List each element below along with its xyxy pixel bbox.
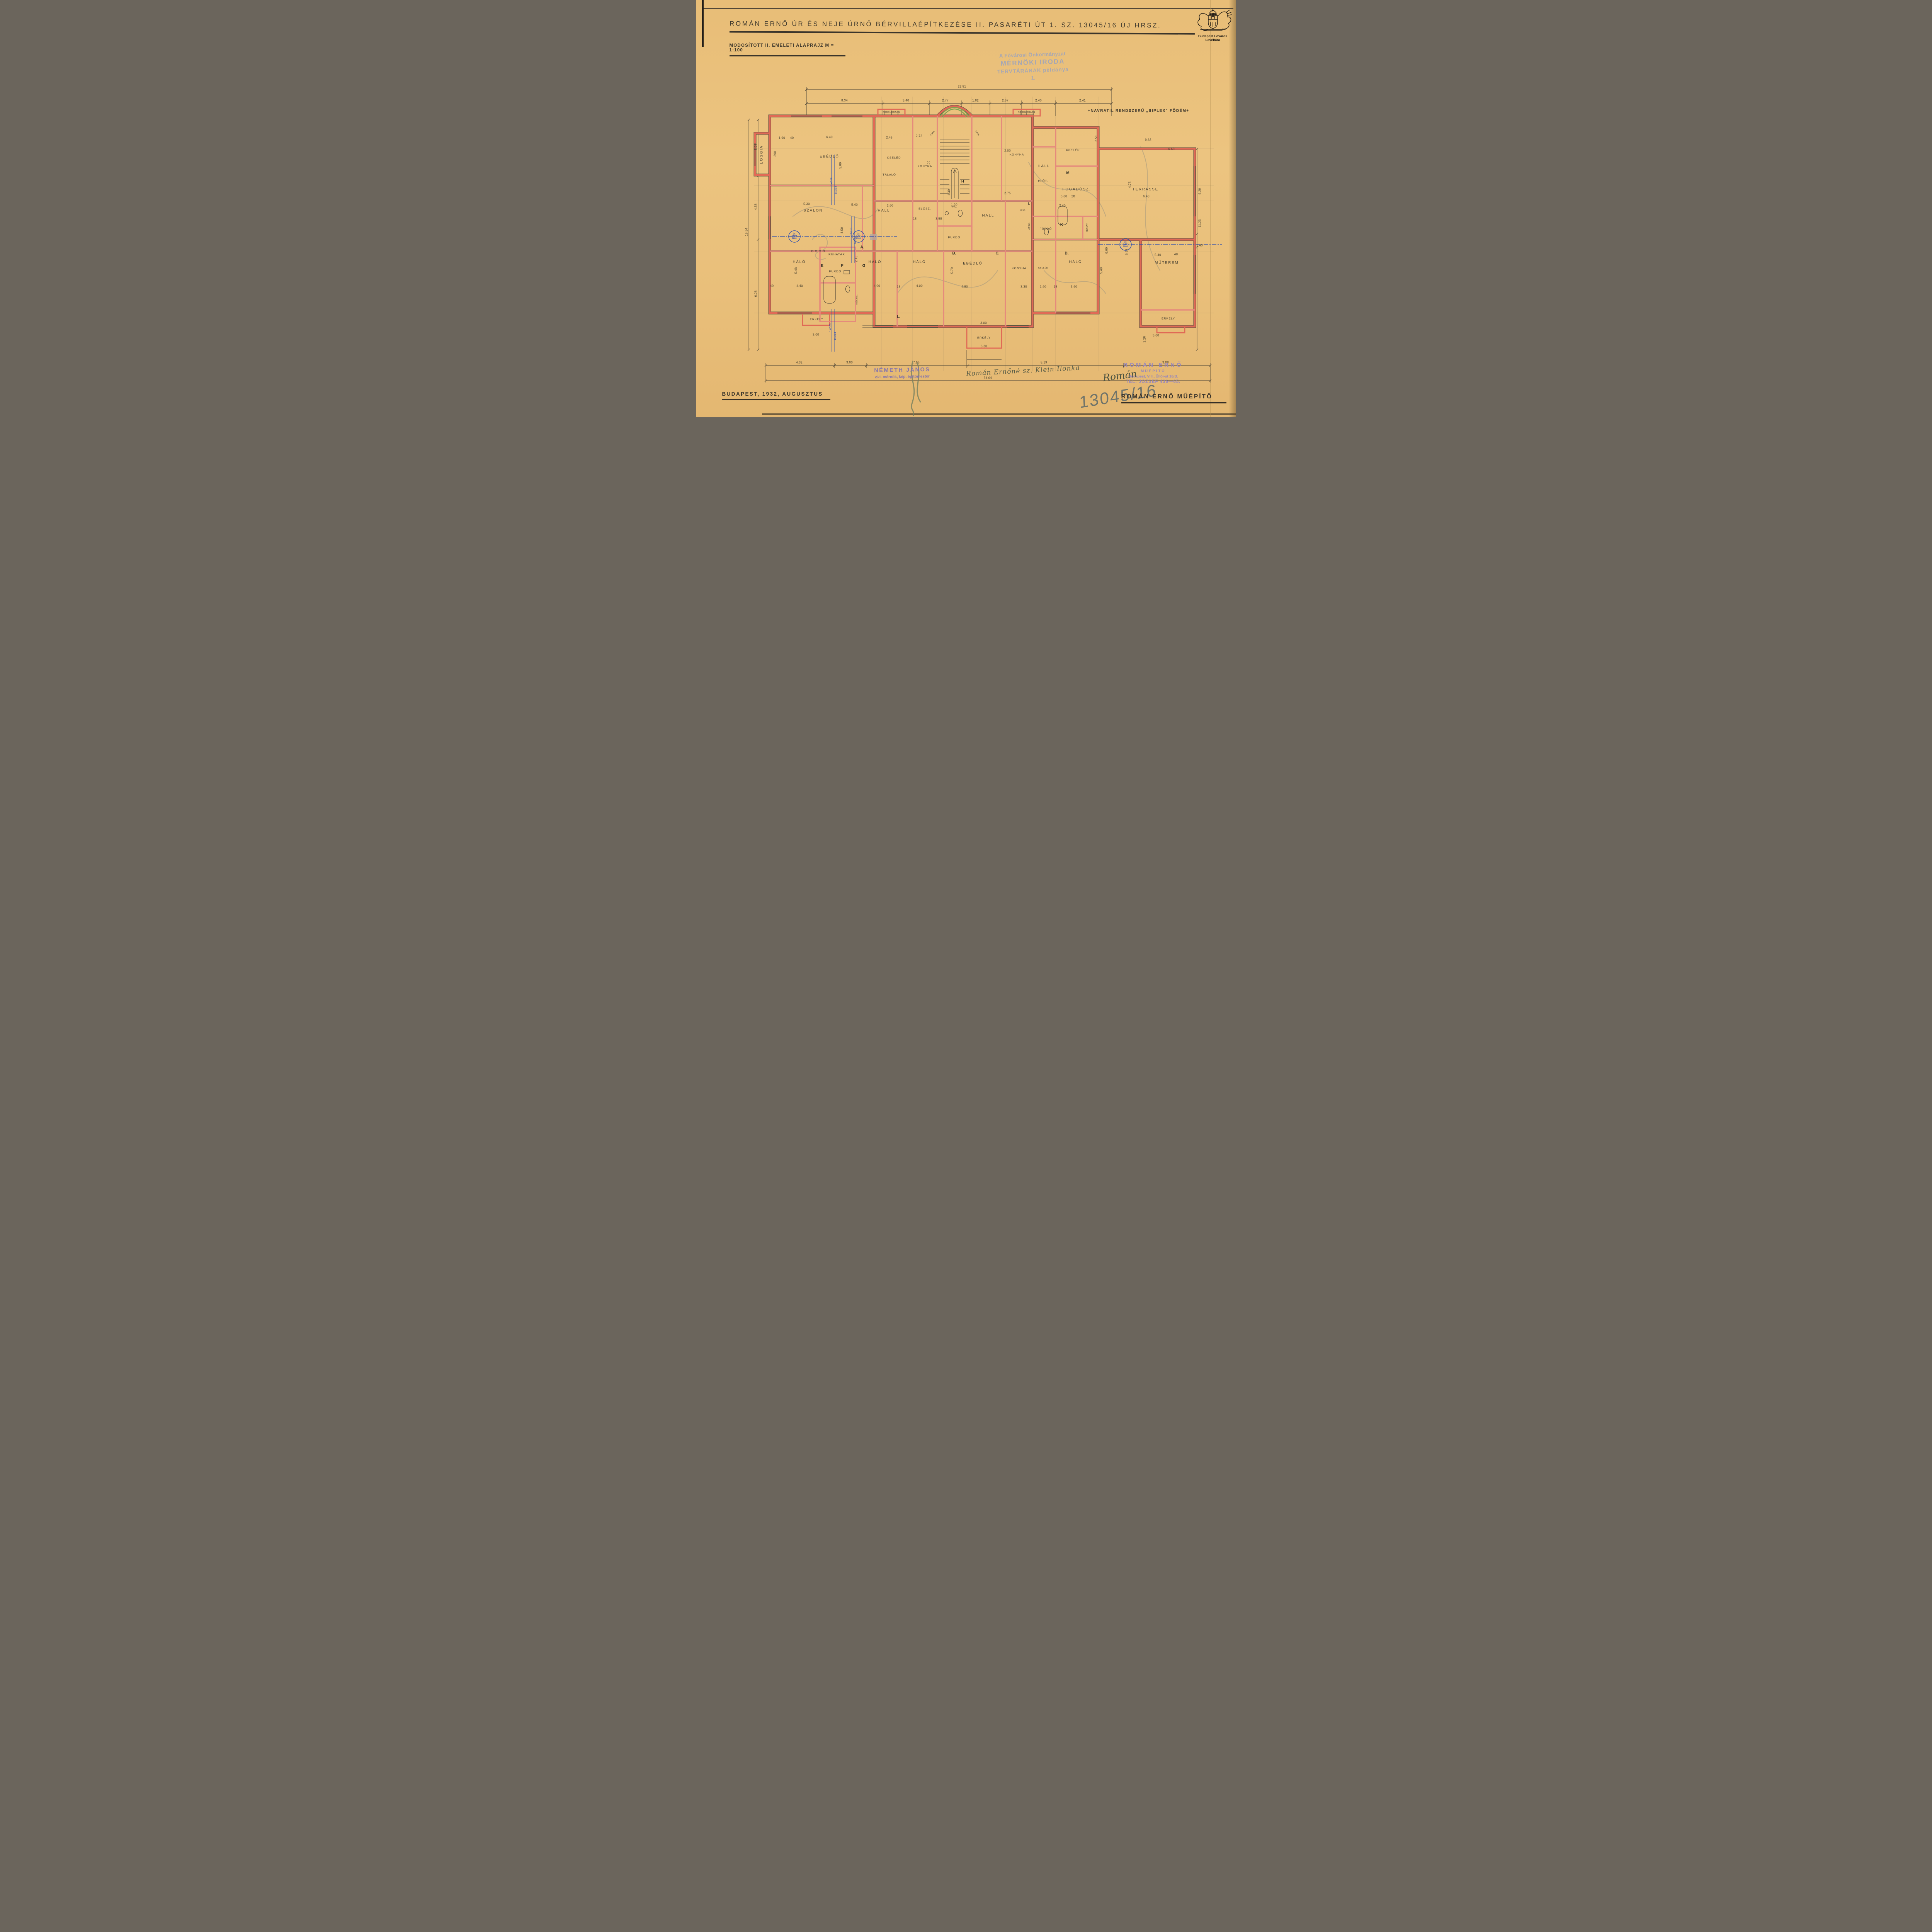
dim-inner: 4.00 <box>874 284 880 288</box>
dim-inner: 2.45 <box>854 256 858 262</box>
room-label-halo3: HÁLÓ <box>913 260 926 264</box>
room-label-erkely-left: ERKÉLY <box>810 318 823 321</box>
dim-top-seg: 2.77 <box>942 99 949 102</box>
dim-bottom-seg: 4.32 <box>796 361 803 364</box>
section-letter-i: I. <box>1028 202 1031 206</box>
dim-inner: 3.00 <box>1153 334 1159 337</box>
dim-inner: 40 <box>1174 253 1178 256</box>
section-letter-f: F <box>841 264 843 268</box>
dim-inner: 4.50 <box>840 227 844 234</box>
section-letter-e: E <box>821 264 823 268</box>
section-letter-c: C. <box>996 252 1000 256</box>
scanned-blueprint-page: ROMÁN ERNŐ ÚR ÉS NEJE ÚRNŐ BÉRVILLAÉPÍTK… <box>696 0 1236 417</box>
pencil-scribbles <box>793 147 1160 294</box>
section-letter-a: A. <box>861 245 864 250</box>
dim-top-seg: 2.41 <box>1079 99 1086 102</box>
room-label-cseled-btm: CSELÉD <box>1038 267 1048 269</box>
room-label-hoszig: HŐSZIG. <box>856 294 858 305</box>
dim-inner: 4.00 <box>927 161 930 167</box>
room-label-halo4: HÁLÓ <box>1069 260 1082 264</box>
dim-inner: 1.90 <box>779 136 785 140</box>
dim-inner: 5.40 <box>851 203 858 207</box>
dim-left-seg: 6.28 <box>754 291 757 297</box>
dim-top-seg: 2.40 <box>1035 99 1042 102</box>
dim-inner: 2.60 <box>887 204 893 207</box>
dim-inner: 2.75 <box>1004 192 1011 195</box>
dim-left-seg: 4.58 <box>754 204 757 210</box>
engineer-stamp: NÉMETH JÁNOS okl. mérnök, kép. építőmest… <box>865 366 939 379</box>
architect-name-plate: ROMÁN ERNŐ MŰÉPÍTŐ <box>1121 393 1226 403</box>
dim-inner: 5.70 <box>950 267 954 274</box>
room-label-hall-right: HALL <box>1038 164 1050 168</box>
room-label-porolo1: POROLÓRÁCS <box>883 111 900 114</box>
section-letter-g: G <box>862 264 866 268</box>
dim-inner: 2.72 <box>916 134 922 138</box>
room-label-halo2: HÁLÓ <box>869 260 882 264</box>
room-label-ebedlo-btm: EBÉDLŐ <box>963 262 983 266</box>
staircase <box>940 139 969 199</box>
dim-inner: 15 <box>913 217 917 221</box>
circle-stamp-text: 5600 <box>792 238 797 240</box>
dim-inner: 28 <box>1071 195 1075 198</box>
dim-inner: 5.48 <box>794 267 798 274</box>
room-label-ruhatar: RUHATÁR <box>828 253 845 256</box>
dim-inner: 4.80 <box>961 285 968 289</box>
dim-right-seg: 6.20 <box>1198 188 1201 195</box>
wall-outlines-dark <box>755 106 1195 327</box>
rebar-note: 1x∅14 <box>834 186 837 194</box>
room-label-erkely-center: ERKÉLY <box>977 336 991 340</box>
room-label-atsz: ÁTSZ. <box>1028 223 1031 230</box>
room-label-ebedlo-top: EBÉDLŐ <box>820 155 839 159</box>
dim-inner: 9.63 <box>1145 138 1151 142</box>
section-letter-d: D. <box>1065 252 1069 256</box>
rebar-note: 1x∅18 <box>830 177 833 185</box>
dim-inner: 4.00 <box>916 284 923 288</box>
dim-inner: 5.00 <box>838 162 842 169</box>
plaster-patch <box>870 234 877 240</box>
dim-bottom-seg: 3.00 <box>846 361 853 364</box>
bathroom-fixtures <box>811 111 1067 303</box>
section-letter-h: H <box>961 180 964 184</box>
room-label-loggia: LOGGIA <box>759 145 764 164</box>
dim-inner: 1.60 <box>1040 285 1046 289</box>
construction-lines <box>754 97 1214 371</box>
dim-inner: 2.40 <box>1059 204 1066 207</box>
rebar-note: 1x∅20 <box>829 323 832 332</box>
room-label-elot: ELŐT. <box>1038 179 1048 183</box>
dim-top-seg: 8.34 <box>841 99 848 102</box>
room-label-cseled-top: CSELÉD <box>887 156 901 160</box>
dim-inner: 3.30 <box>1020 285 1027 289</box>
section-letter-k: K <box>1060 223 1063 227</box>
dim-inner: 15 <box>897 285 901 289</box>
dim-right-seg: 11.23 <box>1198 219 1201 228</box>
room-label-ruhat: RUHÁT. <box>1086 223 1088 231</box>
dim-top-total: 22.81 <box>958 85 966 88</box>
dim-bottom-seg: 7.95 <box>913 361 920 364</box>
dim-top-seg: 3.40 <box>903 99 909 102</box>
dim-inner: 1.30 <box>947 189 951 196</box>
room-label-fogadosz: FOGADÓSZ. <box>1063 187 1091 192</box>
circle-stamp-text: 2900 <box>1123 246 1128 248</box>
engineer-name: NÉMETH JÁNOS <box>865 366 939 374</box>
dim-left-total: 15.94 <box>745 228 748 236</box>
room-label-wc2: W.C. <box>1020 209 1026 212</box>
dim-top-seg: 1.82 <box>972 99 979 102</box>
room-label-erkely-right: ERKÉLY <box>1162 317 1175 320</box>
room-label-furdo-right: FÜRDŐ <box>1040 227 1052 231</box>
partitions-dark <box>770 185 1098 251</box>
dim-inner: 2.20 <box>1143 336 1146 343</box>
room-label-terrasse: TERRASSE <box>1133 187 1158 192</box>
dim-right-seg: 1.43 <box>1196 244 1203 247</box>
dim-inner: 3.58 <box>935 217 942 221</box>
dim-inner: 3.00 <box>813 333 819 337</box>
floor-plan-drawing <box>696 0 1236 417</box>
dim-inner: 390 <box>773 151 777 156</box>
section-letter-b: B. <box>952 252 956 256</box>
dim-inner: 5.40 <box>1155 253 1161 257</box>
architect-name: ROMÁN ERNŐ <box>1119 362 1188 368</box>
dim-inner: 3.80 <box>1061 195 1067 198</box>
dim-bottom-seg: 8.19 <box>1041 361 1047 364</box>
circle-stamp-text: 2900 <box>856 238 861 240</box>
room-label-muterem: MŰTEREM <box>1155 261 1179 265</box>
dim-inner: 3.00 <box>980 321 987 325</box>
section-letter-l: L. <box>897 315 900 319</box>
dim-inner: 6.40 <box>826 136 833 139</box>
room-label-talalo: TÁLALÓ <box>883 173 896 177</box>
dim-inner: 5.60 <box>981 345 987 348</box>
section-letter-m: M <box>1066 171 1069 175</box>
room-label-szalon: SZALON <box>803 209 823 213</box>
dim-inner: 15 <box>1054 285 1058 289</box>
dim-inner: 6.40 <box>1143 195 1150 198</box>
room-label-konyha-top: KONYHA <box>1010 153 1024 156</box>
dim-top-seg: 2.67 <box>1002 99 1009 102</box>
date-note: BUDAPEST, 1932, AUGUSZTUS <box>722 391 830 400</box>
dim-inner: 3.51 <box>1094 135 1098 142</box>
rebar-note: 1x∅12 <box>849 228 852 236</box>
room-label-hall-main: HALL <box>982 214 995 218</box>
room-label-furdo-left: FÜRDŐ <box>829 270 842 273</box>
dim-inner: 40 <box>770 284 774 288</box>
dim-inner: 2.00 <box>1004 149 1011 153</box>
room-label-porolo2: POROLÓRÁCS <box>1018 111 1035 114</box>
dim-inner: 4.40 <box>796 284 803 288</box>
dim-inner: 6.60 <box>1168 148 1175 151</box>
dim-inner: 3.60 <box>1071 285 1077 289</box>
dim-inner: 6.68 <box>1125 249 1128 255</box>
dim-inner: 4.75 <box>1128 182 1131 188</box>
wall-outlines <box>755 106 1195 327</box>
room-label-hall-left: HALL <box>878 209 890 213</box>
room-label-konyha-btm: KONYHA <box>1012 267 1027 270</box>
dim-inner: 5.48 <box>1099 267 1103 274</box>
dim-inner: 5.30 <box>803 202 810 206</box>
room-label-halo1: HÁLÓ <box>793 260 806 264</box>
dim-inner: 2.45 <box>886 136 893 139</box>
dim-inner: 6.00 <box>1105 247 1108 254</box>
dim-left-seg: 5.08 <box>754 144 757 150</box>
dim-inner: 40 <box>790 136 794 140</box>
room-label-furdo-mid: FÜRDŐ <box>948 236 961 239</box>
rebar-note: 1x∅14 <box>833 332 837 340</box>
room-label-cseled-top-right: CSELÉD <box>1066 148 1080 152</box>
dim-inner: 1.20 <box>951 203 957 207</box>
room-label-elosz: ELŐSZ. <box>918 207 931 211</box>
